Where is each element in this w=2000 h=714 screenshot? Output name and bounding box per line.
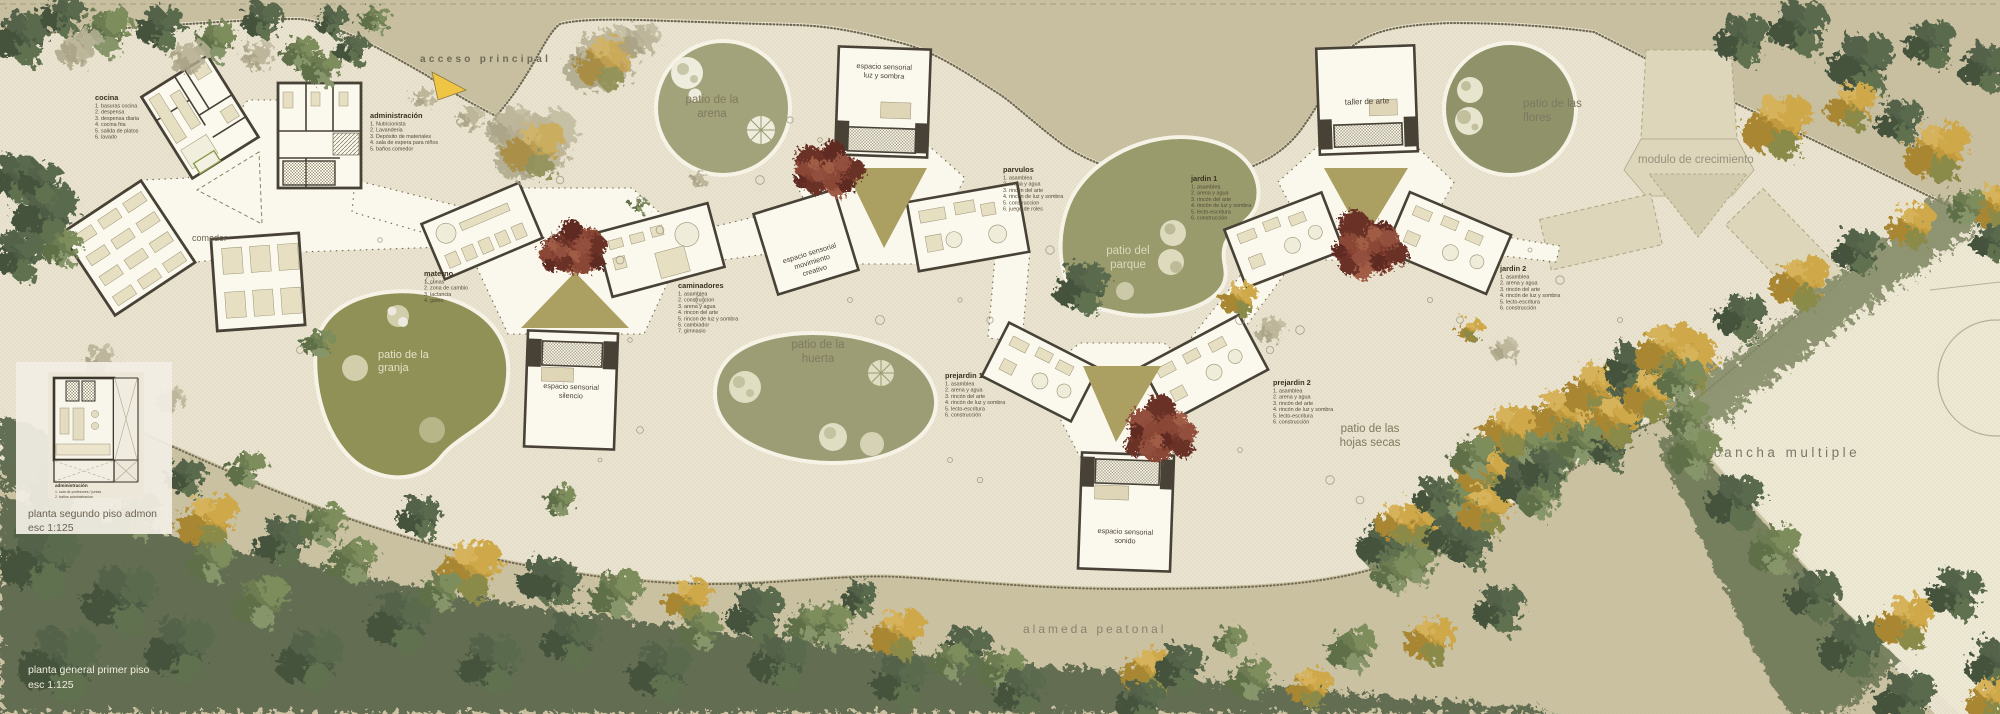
svg-text:3. Depósito de materiales: 3. Depósito de materiales bbox=[370, 134, 431, 140]
svg-text:2. Lavanderia: 2. Lavanderia bbox=[370, 128, 403, 134]
svg-text:3. rincón del arte: 3. rincón del arte bbox=[945, 394, 985, 400]
svg-text:4. cocina fria: 4. cocina fria bbox=[95, 122, 126, 128]
svg-text:alameda peatonal: alameda peatonal bbox=[1023, 622, 1166, 636]
svg-text:5. salida de platos: 5. salida de platos bbox=[95, 128, 139, 134]
svg-text:administración: administración bbox=[55, 483, 88, 488]
svg-text:5. lecto-escritura: 5. lecto-escritura bbox=[945, 406, 985, 412]
svg-text:1. asamblea: 1. asamblea bbox=[1003, 176, 1032, 182]
svg-text:parque: parque bbox=[1110, 259, 1146, 271]
svg-text:2. arena y agua: 2. arena y agua bbox=[1191, 191, 1228, 197]
svg-text:taller de arte: taller de arte bbox=[1345, 96, 1390, 107]
svg-text:2. zona de cambio: 2. zona de cambio bbox=[424, 286, 468, 292]
svg-text:modulo de crecimiento: modulo de crecimiento bbox=[1638, 154, 1754, 166]
svg-text:2. construccion: 2. construccion bbox=[678, 298, 714, 304]
svg-text:administración: administración bbox=[370, 111, 423, 120]
svg-text:2. arena y agua: 2. arena y agua bbox=[1273, 395, 1310, 401]
svg-text:arena: arena bbox=[697, 108, 727, 120]
svg-text:hojas secas: hojas secas bbox=[1340, 437, 1401, 449]
svg-text:2. despensa: 2. despensa bbox=[95, 110, 124, 116]
svg-text:jardin 2: jardin 2 bbox=[1499, 264, 1526, 273]
svg-text:6. construcción: 6. construcción bbox=[1273, 420, 1309, 426]
svg-text:prejardin 2: prejardin 2 bbox=[1273, 378, 1311, 387]
svg-text:1. asamblea: 1. asamblea bbox=[1191, 185, 1220, 191]
svg-text:5. lecto-escritura: 5. lecto-escritura bbox=[1500, 299, 1540, 305]
svg-text:1. cunas: 1. cunas bbox=[424, 280, 445, 286]
svg-text:2. arena y agua: 2. arena y agua bbox=[1500, 281, 1537, 287]
svg-text:2. arena y agua: 2. arena y agua bbox=[945, 388, 982, 394]
svg-text:6. construcción: 6. construcción bbox=[1500, 306, 1536, 312]
svg-text:comedor: comedor bbox=[192, 233, 227, 243]
svg-text:4. rincón de luz y sombra: 4. rincón de luz y sombra bbox=[1273, 407, 1333, 413]
svg-text:3. arena y agua: 3. arena y agua bbox=[678, 304, 715, 310]
svg-text:planta general primer piso: planta general primer piso bbox=[28, 664, 150, 676]
svg-text:patio de las: patio de las bbox=[1523, 98, 1582, 110]
svg-text:prejardin 1: prejardin 1 bbox=[945, 371, 983, 380]
svg-text:1. asamblea: 1. asamblea bbox=[1273, 389, 1302, 395]
svg-text:1. asamblea: 1. asamblea bbox=[945, 382, 974, 388]
svg-text:granja: granja bbox=[378, 362, 409, 374]
svg-text:jardin 1: jardin 1 bbox=[1190, 174, 1217, 183]
svg-text:6. lavado: 6. lavado bbox=[95, 135, 117, 141]
svg-text:3. despensa diaria: 3. despensa diaria bbox=[95, 116, 139, 122]
svg-text:6. construcción: 6. construcción bbox=[1191, 216, 1227, 222]
svg-text:5. lecto-escritura: 5. lecto-escritura bbox=[1273, 413, 1313, 419]
svg-text:materno: materno bbox=[424, 269, 454, 278]
svg-text:patio de la: patio de la bbox=[791, 339, 845, 351]
svg-text:1. asamblea: 1. asamblea bbox=[678, 292, 707, 298]
svg-text:4. rincón de luz y sombra: 4. rincón de luz y sombra bbox=[945, 400, 1005, 406]
svg-text:parvulos: parvulos bbox=[1003, 165, 1034, 174]
svg-text:5. rincon de luz y sombra: 5. rincon de luz y sombra bbox=[678, 316, 738, 322]
svg-text:5. baños comedor: 5. baños comedor bbox=[370, 146, 413, 152]
svg-text:patio de las: patio de las bbox=[1341, 423, 1400, 435]
svg-text:caminadores: caminadores bbox=[678, 281, 724, 290]
svg-text:2. baños administracion: 2. baños administracion bbox=[55, 495, 93, 499]
svg-text:huerta: huerta bbox=[802, 353, 835, 365]
svg-text:4. rincon del arte: 4. rincon del arte bbox=[678, 310, 718, 316]
svg-text:4. rincón de luz y sombra: 4. rincón de luz y sombra bbox=[1003, 194, 1063, 200]
svg-text:1. asamblea: 1. asamblea bbox=[1500, 275, 1529, 281]
svg-text:flores: flores bbox=[1523, 112, 1551, 124]
svg-text:esc 1:125: esc 1:125 bbox=[28, 679, 74, 691]
svg-text:6. cambiador: 6. cambiador bbox=[678, 323, 709, 329]
svg-text:patio del: patio del bbox=[1106, 245, 1149, 257]
svg-text:6. juego de roles: 6. juego de roles bbox=[1003, 207, 1043, 213]
svg-text:3. lactancia: 3. lactancia bbox=[424, 292, 451, 298]
svg-text:1. sala de profesores / juntas: 1. sala de profesores / juntas bbox=[55, 490, 101, 494]
svg-text:5. lecto-escritura: 5. lecto-escritura bbox=[1191, 209, 1231, 215]
svg-text:3. rincón del arte: 3. rincón del arte bbox=[1191, 197, 1231, 203]
svg-text:acceso principal: acceso principal bbox=[420, 54, 551, 65]
svg-text:4. rincón de luz y sombra: 4. rincón de luz y sombra bbox=[1191, 203, 1251, 209]
svg-text:4. sala de espera para niños: 4. sala de espera para niños bbox=[370, 140, 438, 146]
svg-text:3. rincón del arte: 3. rincón del arte bbox=[1273, 401, 1313, 407]
svg-text:4. rincón de luz y sombra: 4. rincón de luz y sombra bbox=[1500, 293, 1560, 299]
svg-text:patio de la: patio de la bbox=[685, 94, 739, 106]
svg-text:patio de la: patio de la bbox=[378, 349, 430, 361]
svg-text:1. Nutricionista: 1. Nutricionista bbox=[370, 122, 406, 128]
svg-text:2. arena y agua: 2. arena y agua bbox=[1003, 182, 1040, 188]
svg-text:esc 1:125: esc 1:125 bbox=[28, 522, 74, 534]
svg-text:luz y sombra: luz y sombra bbox=[863, 70, 904, 80]
svg-text:cocina: cocina bbox=[95, 93, 119, 102]
svg-text:4. gateo: 4. gateo bbox=[424, 298, 443, 304]
svg-text:1. basuras cocina: 1. basuras cocina bbox=[95, 104, 137, 110]
svg-text:3. rincón del arte: 3. rincón del arte bbox=[1500, 287, 1540, 293]
svg-text:silencio: silencio bbox=[559, 391, 583, 401]
svg-text:5. construccion: 5. construccion bbox=[1003, 200, 1039, 206]
svg-text:6. construcción: 6. construcción bbox=[945, 413, 981, 419]
svg-text:planta segundo piso admon: planta segundo piso admon bbox=[28, 508, 157, 520]
svg-text:3. rincón del arte: 3. rincón del arte bbox=[1003, 188, 1043, 194]
svg-text:7. gimnasio: 7. gimnasio bbox=[678, 329, 706, 335]
svg-text:sonido: sonido bbox=[1114, 536, 1135, 546]
